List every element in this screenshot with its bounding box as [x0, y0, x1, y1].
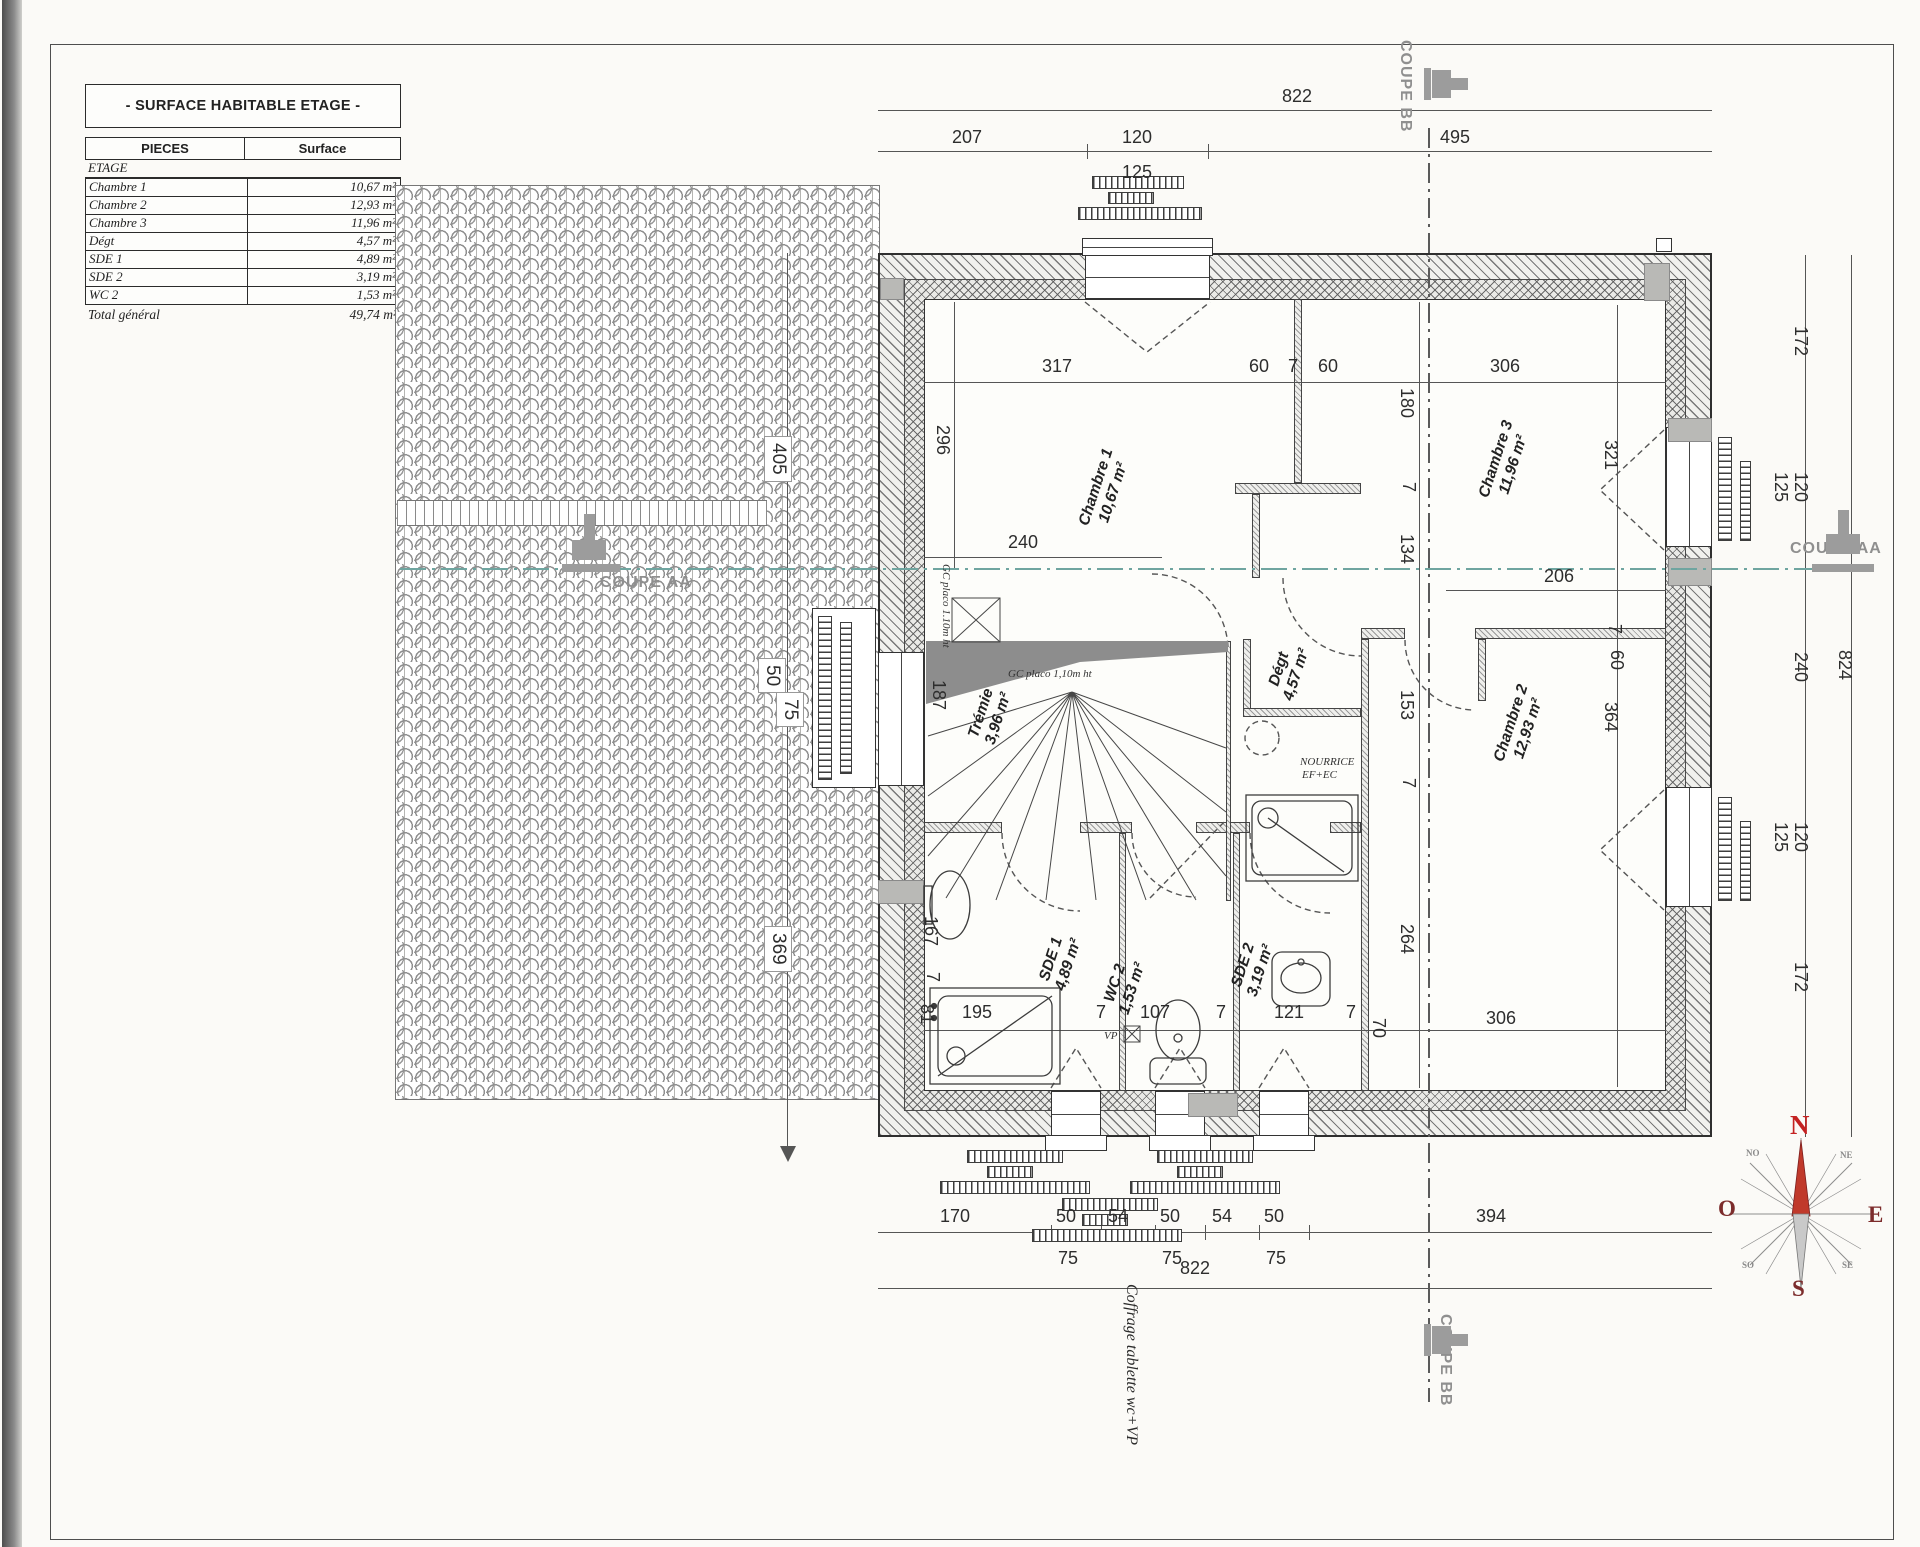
- partition-wall: [1243, 639, 1251, 711]
- dim-label: 54: [1108, 1206, 1128, 1227]
- shutter-symbol: [967, 1150, 1063, 1163]
- dim-label: EF+EC: [1302, 769, 1337, 781]
- table-row: SDE 23,19 m²: [85, 269, 401, 287]
- dim-label: 50: [1264, 1206, 1284, 1227]
- dim-label: 306: [1486, 1008, 1516, 1029]
- coupe-bb-arrow-bottom-icon: [1424, 1324, 1470, 1358]
- dim-label: 50: [1160, 1206, 1180, 1227]
- partition-wall: [1475, 628, 1666, 639]
- table-rows: Chambre 110,67 m²Chambre 212,93 m²Chambr…: [85, 178, 401, 305]
- dim-label: 120: [1790, 472, 1811, 502]
- right-window-1: [1666, 427, 1712, 547]
- table-cell-surface: 4,89 m²: [248, 251, 400, 268]
- table-cell-surface: 4,57 m²: [248, 233, 400, 250]
- table-row: Chambre 212,93 m²: [85, 197, 401, 215]
- dim-label: 364: [1600, 702, 1621, 732]
- dim-label: 70: [1368, 1018, 1389, 1038]
- dim-label: 125: [1770, 822, 1791, 852]
- dim-label: 187: [928, 680, 949, 710]
- wall-post-block: [1668, 558, 1712, 586]
- shutter-symbol: [1157, 1150, 1253, 1163]
- dim-label: 170: [940, 1206, 970, 1227]
- total-value: 49,74 m²: [246, 305, 401, 324]
- col-pieces: PIECES: [86, 138, 245, 159]
- partition-wall: [1196, 822, 1250, 833]
- table-total-row: Total général 49,74 m²: [85, 305, 401, 324]
- right-window-2: [1666, 787, 1712, 907]
- surface-table-header: PIECES Surface: [85, 137, 401, 160]
- table-cell-surface: 10,67 m²: [248, 179, 400, 196]
- scanner-edge-shadow: [2, 0, 22, 1547]
- dim-label: 120: [1122, 127, 1152, 148]
- floor-plan-page: { "table": { "title": "- SURFACE HABITAB…: [0, 0, 1920, 1547]
- dim-label: 120: [1790, 822, 1811, 852]
- compass-letter-s: S: [1792, 1276, 1805, 1302]
- shutter-symbol: [1740, 461, 1751, 541]
- surface-table-title: - SURFACE HABITABLE ETAGE -: [85, 84, 401, 128]
- dim-label: 822: [1282, 86, 1312, 107]
- surface-table: - SURFACE HABITABLE ETAGE - PIECES Surfa…: [85, 84, 401, 324]
- dim-label: 7: [1216, 1002, 1226, 1023]
- dimension-line: [1446, 590, 1666, 591]
- dimension-line: [1087, 144, 1088, 159]
- shutter-symbol: [1108, 192, 1154, 204]
- shutter-symbol: [987, 1166, 1033, 1178]
- dimension-line: [1205, 1225, 1206, 1240]
- dim-label: 134: [1396, 534, 1417, 564]
- dimension-line: [1617, 305, 1618, 1087]
- dim-label: GC placo 1,10m ht: [1008, 668, 1092, 680]
- dim-label: 7: [1398, 778, 1419, 788]
- dim-label: 264: [1396, 924, 1417, 954]
- bottom-window-1: [1051, 1091, 1101, 1137]
- dim-label: 7: [1096, 1002, 1106, 1023]
- dim-label: 296: [932, 425, 953, 455]
- roof-tile-area: [395, 185, 880, 1100]
- coupe-label: COUPE BB: [1396, 40, 1414, 132]
- dim-label: 321: [1600, 440, 1621, 470]
- compass-letters: NOESNONESOSE: [1716, 1118, 1886, 1296]
- dim-label: 240: [1008, 532, 1038, 553]
- dim-label: 107: [1140, 1002, 1170, 1023]
- dim-label: 125: [1770, 472, 1791, 502]
- table-cell-piece: Chambre 2: [86, 197, 248, 214]
- table-row: Chambre 110,67 m²: [85, 178, 401, 197]
- shutter-symbol: [1130, 1181, 1280, 1194]
- table-cell-piece: SDE 1: [86, 251, 248, 268]
- dim-label: 207: [952, 127, 982, 148]
- table-cell-piece: SDE 2: [86, 269, 248, 286]
- dim-label: 822: [1180, 1258, 1210, 1279]
- coupe-label: COUPE AA: [600, 574, 692, 592]
- shutter-symbol: [1740, 821, 1751, 901]
- shutter-symbol: [1718, 797, 1732, 901]
- dim-label: 306: [1490, 356, 1520, 377]
- table-cell-surface: 1,53 m²: [248, 287, 400, 304]
- partition-wall: [1080, 822, 1132, 833]
- table-section-etage: ETAGE: [85, 160, 401, 178]
- compass-letter-se: SE: [1842, 1260, 1853, 1270]
- partition-wall: [1235, 483, 1361, 494]
- dimension-line: [954, 302, 955, 568]
- dim-label: 7: [1398, 482, 1419, 492]
- partition-wall: [1252, 494, 1260, 578]
- shutter-symbol: [818, 616, 832, 780]
- col-surface: Surface: [245, 138, 400, 159]
- dimension-line: [924, 557, 1162, 558]
- dimension-line: [878, 151, 1712, 152]
- partition-wall: [924, 822, 1002, 833]
- shutter-symbol: [1078, 207, 1202, 220]
- table-row: Dégt4,57 m²: [85, 233, 401, 251]
- dim-label: 50: [1056, 1206, 1076, 1227]
- dim-label: 81: [916, 1004, 937, 1024]
- partition-wall: [1294, 299, 1302, 483]
- wall-post-block: [878, 880, 924, 904]
- shutter-symbol: [940, 1181, 1090, 1194]
- wall-post-block: [1644, 263, 1670, 301]
- partition-wall: [1478, 639, 1486, 701]
- coupe-aa-arrow-left-icon: [560, 514, 640, 576]
- dim-label: 50: [758, 658, 786, 693]
- dim-label: 125: [1122, 162, 1152, 183]
- dimension-arrow-down-icon: [780, 1146, 796, 1162]
- bottom-window-3: [1259, 1091, 1309, 1137]
- dim-label: GC placo 1.10m ht: [940, 564, 952, 648]
- dim-label: 394: [1476, 1206, 1506, 1227]
- dimension-line: [1309, 1225, 1310, 1240]
- dimension-line: [1208, 144, 1209, 159]
- total-label: Total général: [85, 305, 246, 324]
- dim-label: 121: [1274, 1002, 1304, 1023]
- dimension-line: [924, 382, 1666, 383]
- shutter-symbol: [1177, 1166, 1223, 1178]
- dim-label: 369: [764, 926, 792, 972]
- wall-post-block: [1668, 418, 1712, 442]
- dim-label: 206: [1544, 566, 1574, 587]
- compass-letter-n: N: [1790, 1110, 1810, 1141]
- table-cell-piece: Chambre 1: [86, 179, 248, 196]
- table-row: WC 21,53 m²: [85, 287, 401, 305]
- table-cell-surface: 3,19 m²: [248, 269, 400, 286]
- bottom-window-sill: [1253, 1135, 1315, 1151]
- table-cell-surface: 12,93 m²: [248, 197, 400, 214]
- dim-label: 405: [764, 436, 792, 482]
- wall-post-block: [880, 278, 904, 300]
- shutter-symbol: [1032, 1229, 1182, 1242]
- shutter-symbol: [840, 622, 852, 774]
- dim-label: 195: [962, 1002, 992, 1023]
- bottom-window-sill: [1149, 1135, 1211, 1151]
- dimension-line: [1419, 302, 1420, 1088]
- dim-label: 60: [1606, 650, 1627, 670]
- dim-label: 7: [1346, 1002, 1356, 1023]
- dim-label: 240: [1790, 652, 1811, 682]
- table-row: Chambre 311,96 m²: [85, 215, 401, 233]
- top-window-cap: [1082, 238, 1213, 256]
- dim-label: 7: [1288, 356, 1298, 377]
- dim-label: 54: [1212, 1206, 1232, 1227]
- stair-placo-wall: [1226, 641, 1231, 901]
- dimension-line: [878, 1232, 1712, 1233]
- dim-label: 317: [1042, 356, 1072, 377]
- dim-label: 7: [1604, 624, 1625, 634]
- dim-label: 60: [1318, 356, 1338, 377]
- compass-letter-so: SO: [1742, 1260, 1754, 1270]
- dim-label: 167: [920, 916, 941, 946]
- dim-label: 172: [1790, 326, 1811, 356]
- chimney-box: [1656, 238, 1672, 252]
- dimension-line: [878, 110, 1712, 111]
- dim-label: 153: [1396, 690, 1417, 720]
- shutter-symbol: [1718, 437, 1732, 541]
- compass-letter-e: E: [1868, 1202, 1883, 1228]
- compass-letter-ne: NE: [1840, 1150, 1853, 1160]
- dim-label: NOURRICE: [1300, 756, 1354, 768]
- compass-letter-o: O: [1718, 1196, 1736, 1222]
- bottom-window-sill: [1045, 1135, 1107, 1151]
- dim-label: 495: [1440, 127, 1470, 148]
- table-cell-surface: 11,96 m²: [248, 215, 400, 232]
- wall-post-block: [1188, 1093, 1238, 1117]
- section-line-bb: [1428, 128, 1430, 1402]
- dim-label: VP: [1104, 1030, 1117, 1042]
- table-row: SDE 14,89 m²: [85, 251, 401, 269]
- table-cell-piece: WC 2: [86, 287, 248, 304]
- partition-wall: [1361, 628, 1405, 639]
- dim-label: 172: [1790, 962, 1811, 992]
- compass-letter-no: NO: [1746, 1148, 1760, 1158]
- left-window: [878, 652, 924, 786]
- coupe-aa-arrow-right-icon: [1810, 510, 1890, 576]
- dim-label: 824: [1834, 650, 1855, 680]
- table-cell-piece: Chambre 3: [86, 215, 248, 232]
- dim-label: 75: [1266, 1248, 1286, 1269]
- dim-label: 75: [1058, 1248, 1078, 1269]
- dim-label: 75: [776, 692, 804, 727]
- dimension-line: [1851, 255, 1852, 1137]
- dim-label: Coffrage tablette wc+VP: [1122, 1284, 1140, 1445]
- coupe-bb-arrow-top-icon: [1424, 68, 1470, 102]
- dim-label: 180: [1396, 388, 1417, 418]
- dimension-line: [878, 1288, 1712, 1289]
- table-cell-piece: Dégt: [86, 233, 248, 250]
- partition-wall: [1330, 822, 1361, 833]
- top-window: [1085, 255, 1210, 299]
- dim-label: 7: [922, 972, 943, 982]
- dim-label: 60: [1249, 356, 1269, 377]
- dimension-line: [1259, 1225, 1260, 1240]
- dimension-line: [1805, 255, 1806, 1137]
